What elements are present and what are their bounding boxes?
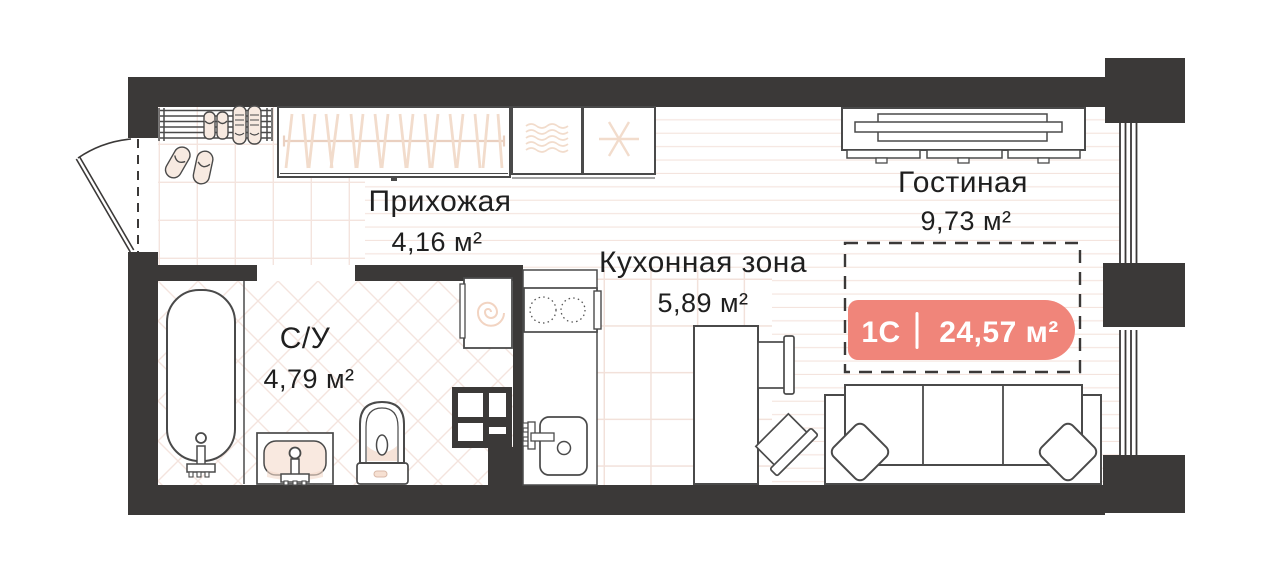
entry-door <box>76 139 138 252</box>
window-upper <box>1120 123 1137 263</box>
window-lower <box>1120 330 1137 455</box>
floor-plan-canvas: 1С 24,57 м² Прихожая 4,16 м² Кухонная зо… <box>0 0 1261 588</box>
vent-shaft-cells <box>458 393 506 441</box>
bathroom-sink <box>257 433 333 485</box>
unit-badge: 1С 24,57 м² <box>848 300 1075 360</box>
tv-console <box>842 108 1085 163</box>
toilet <box>357 402 408 484</box>
wall-left-lower <box>128 252 158 515</box>
unit-type-label: 1С <box>861 316 900 349</box>
vent-shaft-stub <box>488 447 523 485</box>
dining-table <box>694 326 758 484</box>
door-swing-arc <box>78 139 131 158</box>
room-area-hallway: 4,16 м² <box>391 227 482 257</box>
wall-bathroom-left <box>158 265 257 281</box>
bathtub <box>167 290 235 477</box>
sofa <box>825 385 1101 484</box>
room-label-kitchen: Кухонная зона <box>599 246 807 279</box>
floor-plan: 1С 24,57 м² Прихожая 4,16 м² Кухонная зо… <box>0 0 1261 588</box>
room-label-hallway: Прихожая <box>368 185 511 218</box>
room-label-bathroom: С/У <box>280 322 331 355</box>
room-area-kitchen: 5,89 м² <box>657 288 748 318</box>
door-leaf <box>80 157 134 250</box>
badge-divider <box>916 312 919 349</box>
wall-pier-right <box>1103 263 1185 327</box>
room-area-bathroom: 4,79 м² <box>263 364 354 394</box>
unit-area-label: 24,57 м² <box>939 316 1059 349</box>
dryer-cabinet <box>512 107 582 174</box>
washing-machine <box>460 278 512 348</box>
room-label-living: Гостиная <box>898 166 1028 199</box>
wall-top <box>128 77 1105 107</box>
wardrobe <box>278 107 510 181</box>
room-area-living: 9,73 м² <box>920 206 1011 236</box>
stove <box>524 288 601 332</box>
wall-left-upper <box>128 77 158 138</box>
chair-1 <box>758 336 794 394</box>
wall-bottom <box>128 485 1105 515</box>
wardrobe-handle <box>391 176 397 181</box>
fridge-cabinet <box>583 107 655 174</box>
wall-block-top-right <box>1105 58 1185 123</box>
wall-block-bottom-right <box>1103 455 1185 513</box>
